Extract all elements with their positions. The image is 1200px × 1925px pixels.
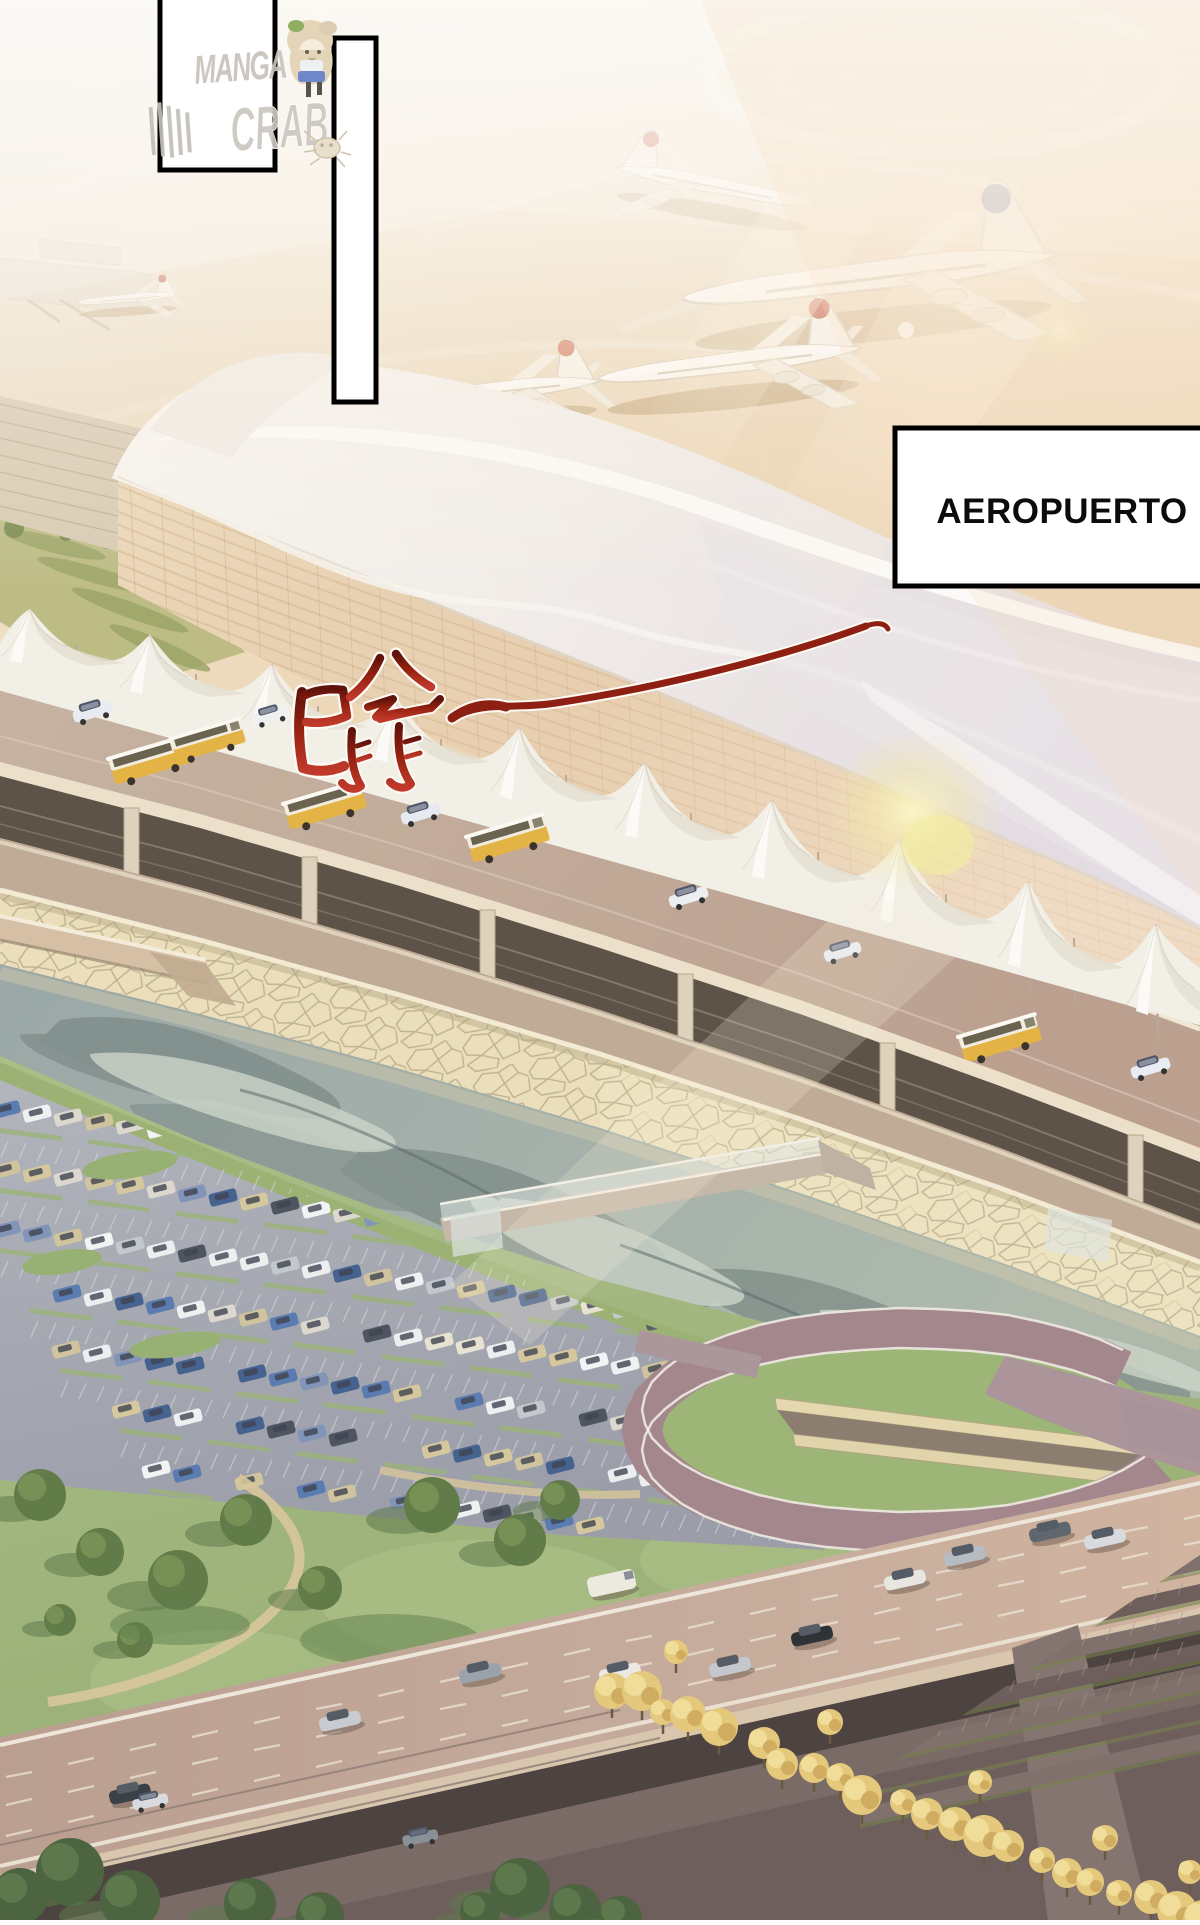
svg-text:CRAB: CRAB [228, 90, 331, 166]
svg-text:AEROPUERTO: AEROPUERTO [936, 492, 1187, 531]
svg-text:MANGA: MANGA [193, 42, 288, 92]
